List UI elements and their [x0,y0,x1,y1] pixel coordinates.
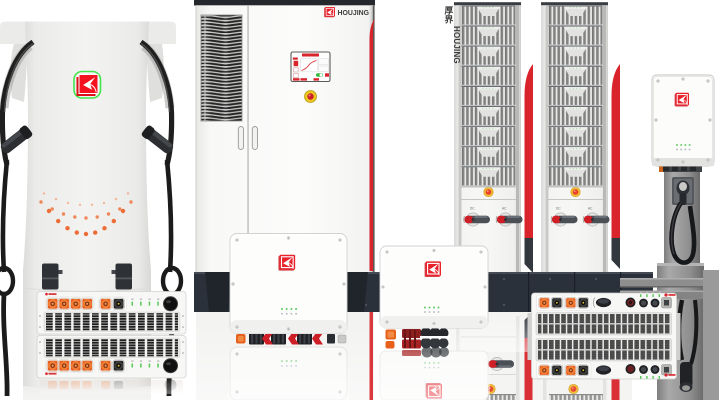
svg-text:HOUJING: HOUJING [452,26,461,64]
svg-text:DC: DC [470,207,475,211]
svg-text:界: 界 [445,15,454,25]
svg-text:DC: DC [556,207,561,211]
svg-text:AC: AC [588,207,593,211]
svg-text:AC: AC [502,207,507,211]
svg-text:HOUJING: HOUJING [338,8,370,17]
